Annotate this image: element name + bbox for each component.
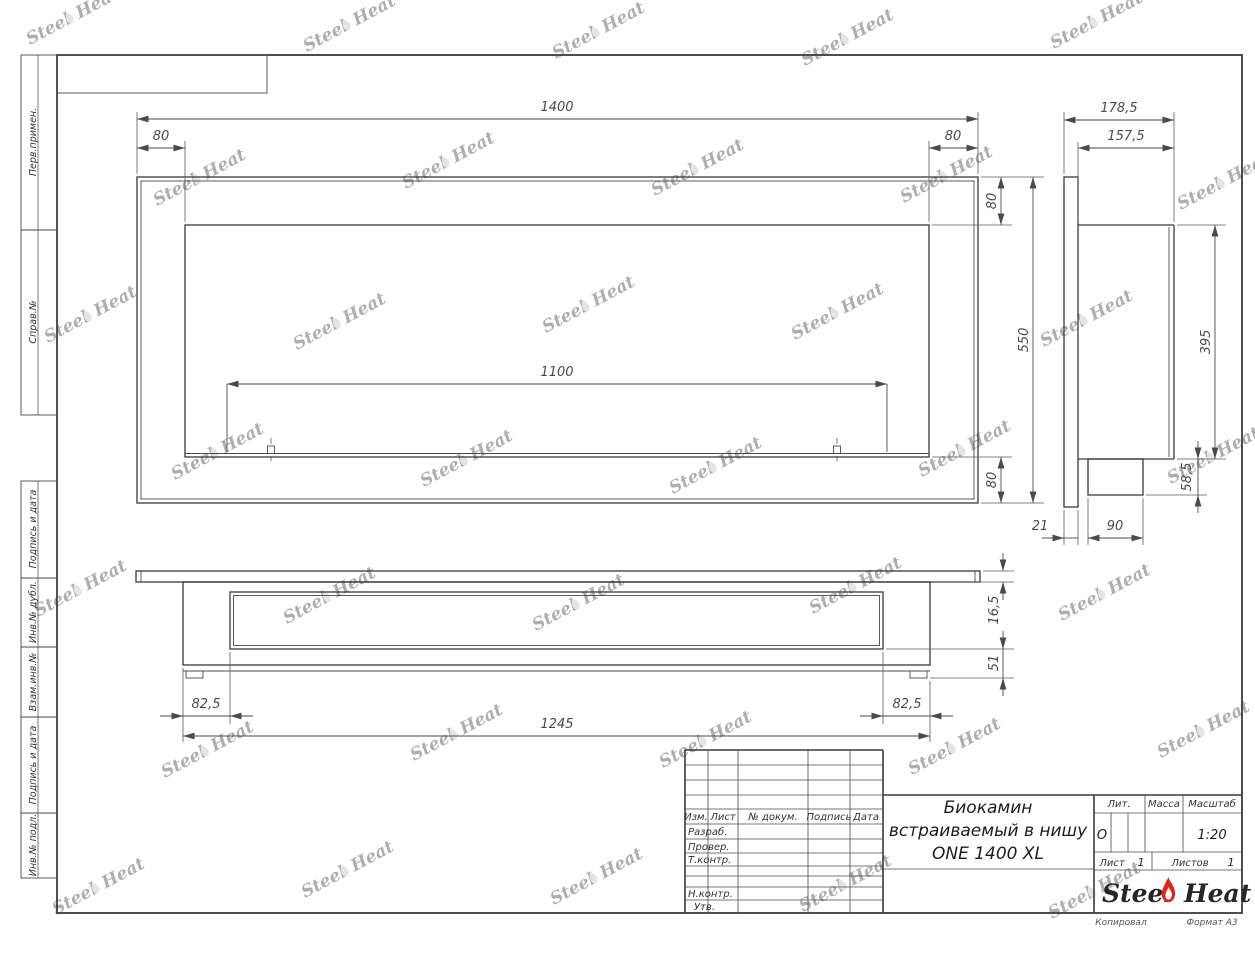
svg-text:Heat: Heat xyxy=(72,0,123,24)
sidebar-label: Справ.№ xyxy=(28,300,39,343)
svg-text:Heat: Heat xyxy=(199,145,250,185)
dim-side-total-depth: 178,5 xyxy=(1100,101,1137,116)
scale-label: Масштаб xyxy=(1188,798,1236,810)
svg-text:Heat: Heat xyxy=(349,0,400,31)
watermark-item: SteelHeat xyxy=(547,844,646,909)
svg-text:Heat: Heat xyxy=(1223,149,1255,189)
plan-view-dimensions: 16,5 51 82,5 82,5 1245 xyxy=(160,553,1014,742)
svg-text:Heat: Heat xyxy=(598,0,649,38)
svg-text:Heat: Heat xyxy=(596,844,647,884)
watermark-item: SteelHeat xyxy=(806,553,905,618)
watermark-item: SteelHeat xyxy=(407,700,506,765)
doc-title-line1: Биокамин xyxy=(944,798,1033,818)
svg-text:Heat: Heat xyxy=(466,426,517,466)
rev-col-izm: Изм. xyxy=(684,812,708,823)
dim-front-total-width: 1400 xyxy=(540,100,573,115)
scale-value: 1:20 xyxy=(1197,828,1226,843)
watermark-item: SteelHeat xyxy=(796,851,895,916)
svg-text:Heat: Heat xyxy=(847,5,898,45)
svg-text:Heat: Heat xyxy=(448,128,499,168)
dim-plan-flange-thickness: 16,5 xyxy=(987,596,1002,625)
svg-text:Heat: Heat xyxy=(715,433,766,473)
drawing-canvas: SteelHeatSteelHeatSteelHeatSteelHeatStee… xyxy=(0,0,1255,970)
dim-front-total-height: 550 xyxy=(1017,328,1032,353)
dim-side-flange-offset: 21 xyxy=(1032,519,1049,534)
watermark-item: SteelHeat xyxy=(49,854,148,919)
dim-front-bottom-margin: 80 xyxy=(985,472,1000,489)
sheet-label: Лист xyxy=(1098,858,1126,869)
watermark-item: SteelHeat xyxy=(1055,560,1154,625)
svg-text:Heat: Heat xyxy=(578,570,629,610)
watermark-item: SteelHeat xyxy=(529,570,628,635)
rev-col-list: Лист xyxy=(709,812,737,823)
dim-front-opening-width: 1100 xyxy=(540,365,573,380)
svg-text:Heat: Heat xyxy=(837,279,888,319)
svg-text:Heat: Heat xyxy=(855,553,906,593)
svg-text:Heat: Heat xyxy=(207,717,258,757)
dim-plan-body-length: 1245 xyxy=(540,717,573,732)
row-prover: Провер. xyxy=(688,842,730,853)
corner-stamp-box xyxy=(57,55,267,93)
dim-side-burner-drop: 58,5 xyxy=(1180,463,1195,492)
sidebar-label: Подпись и дата xyxy=(28,725,39,804)
svg-text:Heat: Heat xyxy=(954,714,1005,754)
svg-text:Heat: Heat xyxy=(1104,560,1155,600)
lit-value: О xyxy=(1097,828,1107,843)
footer-copied: Копировал xyxy=(1095,918,1147,928)
watermark-item: SteelHeat xyxy=(158,717,257,782)
watermark-item: SteelHeat xyxy=(798,5,897,70)
row-tkontr: Т.контр. xyxy=(688,855,731,866)
watermark-item: SteelHeat xyxy=(150,145,249,210)
watermark-item: SteelHeat xyxy=(41,282,140,347)
brand-heat-text: Heat xyxy=(1183,879,1252,908)
dim-plan-foot-drop: 51 xyxy=(987,655,1002,672)
sheets-total: 1 xyxy=(1228,856,1235,869)
svg-text:Heat: Heat xyxy=(98,854,149,894)
dim-side-inner-depth: 157,5 xyxy=(1107,129,1144,144)
dim-plan-left-offset: 82,5 xyxy=(192,697,221,712)
svg-text:Heat: Heat xyxy=(1213,423,1255,463)
watermark-item: SteelHeat xyxy=(897,142,996,207)
brand-logo: Steel Heat xyxy=(1102,877,1252,908)
svg-text:Heat: Heat xyxy=(588,272,639,312)
sheets-label: Листов xyxy=(1170,858,1208,869)
watermark-item: SteelHeat xyxy=(666,433,765,498)
watermark-item: SteelHeat xyxy=(1037,286,1136,351)
rev-col-podpis: Подпись xyxy=(807,812,852,823)
burner-box-side xyxy=(1088,459,1143,495)
front-view-dimensions: 1400 80 80 1100 80 550 80 xyxy=(137,100,1044,503)
watermark-item: SteelHeat xyxy=(31,556,130,621)
title-block: Изм. Лист № докум. Подпись Дата Разраб. … xyxy=(684,750,1251,913)
watermark-item: SteelHeat xyxy=(905,714,1004,779)
lit-label: Лит. xyxy=(1106,799,1130,810)
watermark-layer: SteelHeatSteelHeatSteelHeatSteelHeatStee… xyxy=(23,0,1255,923)
svg-text:Heat: Heat xyxy=(217,419,268,459)
svg-text:Heat: Heat xyxy=(705,707,756,747)
dim-side-burner-depth: 90 xyxy=(1107,519,1124,534)
sidebar-label: Перв.примен. xyxy=(28,108,39,176)
svg-text:Heat: Heat xyxy=(1203,697,1254,737)
sheet-number: 1 xyxy=(1138,856,1145,869)
dim-plan-right-offset: 82,5 xyxy=(893,697,922,712)
front-view xyxy=(137,177,978,503)
sidebar-label: Взам.инв.№ xyxy=(28,653,39,712)
svg-text:Heat: Heat xyxy=(456,700,507,740)
row-nkontr: Н.контр. xyxy=(688,889,733,900)
svg-text:Heat: Heat xyxy=(845,851,896,891)
svg-text:Heat: Heat xyxy=(347,837,398,877)
dim-front-left-margin: 80 xyxy=(153,129,170,144)
row-utv: Утв. xyxy=(694,902,715,913)
foot-right xyxy=(910,671,927,678)
doc-title-line3: ONE 1400 XL xyxy=(932,844,1044,864)
sidebar-label: Инв.№ дубл. xyxy=(28,581,39,643)
svg-text:Heat: Heat xyxy=(329,563,380,603)
drawing-sheet: SteelHeatSteelHeatSteelHeatSteelHeatStee… xyxy=(0,0,1255,970)
footer-format: Формат А3 xyxy=(1186,918,1238,928)
svg-text:Heat: Heat xyxy=(1096,0,1147,28)
watermark-item: SteelHeat xyxy=(300,0,399,56)
row-razrab: Разраб. xyxy=(688,826,727,838)
side-view xyxy=(1064,177,1174,507)
watermark-item: SteelHeat xyxy=(549,0,648,63)
svg-text:Heat: Heat xyxy=(90,282,141,322)
dim-front-right-margin: 80 xyxy=(945,129,962,144)
svg-text:Heat: Heat xyxy=(1086,286,1137,326)
svg-text:Heat: Heat xyxy=(339,289,390,329)
watermark-item: SteelHeat xyxy=(1154,697,1253,762)
watermark-item: SteelHeat xyxy=(417,426,516,491)
doc-title-line2: встраиваемый в нишу xyxy=(889,821,1088,841)
svg-text:Heat: Heat xyxy=(80,556,131,596)
foot-left xyxy=(186,671,203,678)
watermark-item: SteelHeat xyxy=(788,279,887,344)
sidebar-columns: Перв.примен. Справ.№ Подпись и дата Инв.… xyxy=(21,55,57,878)
watermark-item: SteelHeat xyxy=(1047,0,1146,53)
dim-front-top-margin: 80 xyxy=(985,193,1000,210)
watermark-item: SteelHeat xyxy=(168,419,267,484)
dim-side-inner-height: 395 xyxy=(1199,330,1214,355)
mass-label: Масса xyxy=(1148,799,1180,810)
watermark-item: SteelHeat xyxy=(915,416,1014,481)
svg-text:Heat: Heat xyxy=(964,416,1015,456)
watermark-item: SteelHeat xyxy=(399,128,498,193)
rev-col-data: Дата xyxy=(852,812,879,823)
svg-text:Heat: Heat xyxy=(697,135,748,175)
watermark-item: SteelHeat xyxy=(298,837,397,902)
watermark-item: SteelHeat xyxy=(648,135,747,200)
sidebar-label: Инв.№ подл. xyxy=(28,814,39,877)
watermark-item: SteelHeat xyxy=(290,289,389,354)
watermark-item: SteelHeat xyxy=(539,272,638,337)
rev-col-ndocum: № докум. xyxy=(747,812,797,823)
watermark-item: SteelHeat xyxy=(23,0,122,49)
watermark-item: SteelHeat xyxy=(656,707,755,772)
sidebar-label: Подпись и дата xyxy=(28,489,39,568)
